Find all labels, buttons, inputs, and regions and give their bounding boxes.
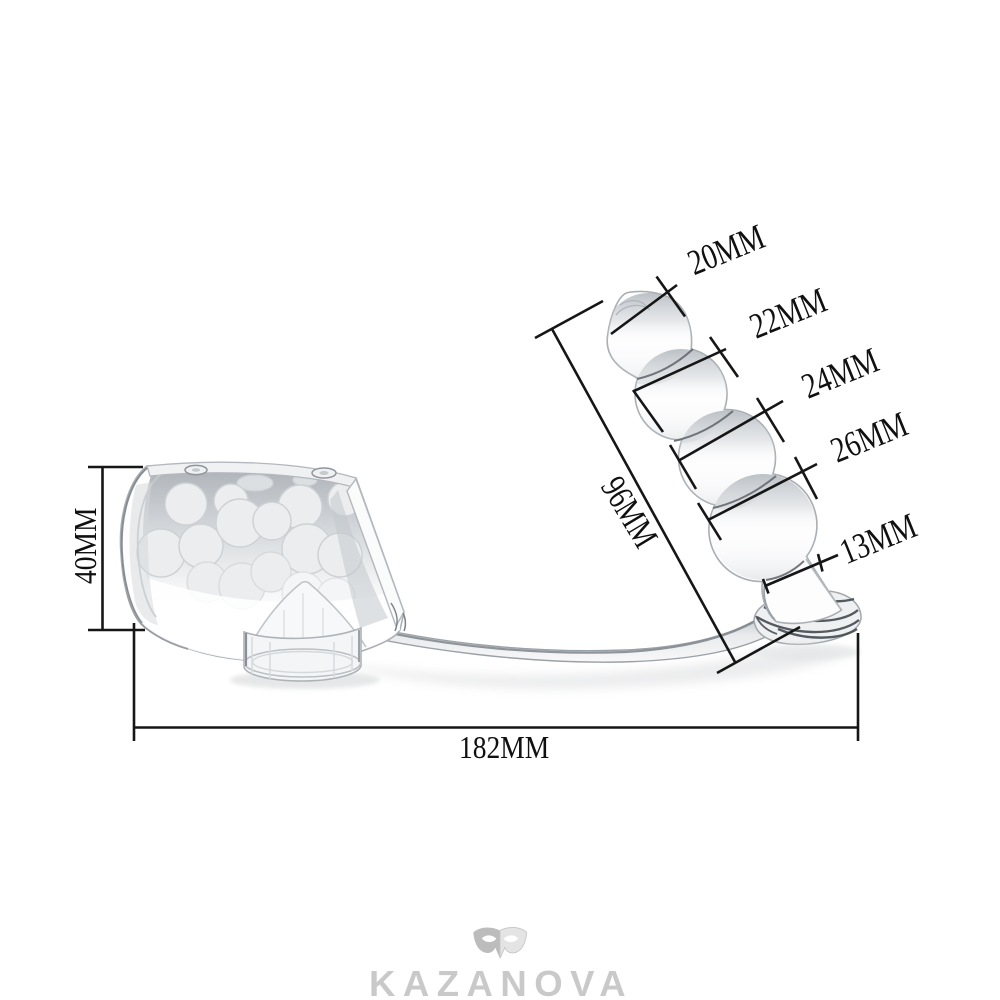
svg-text:182MM: 182MM (459, 730, 549, 765)
svg-text:KAZANOVA: KAZANOVA (369, 963, 633, 1000)
svg-text:40MM: 40MM (68, 508, 103, 584)
